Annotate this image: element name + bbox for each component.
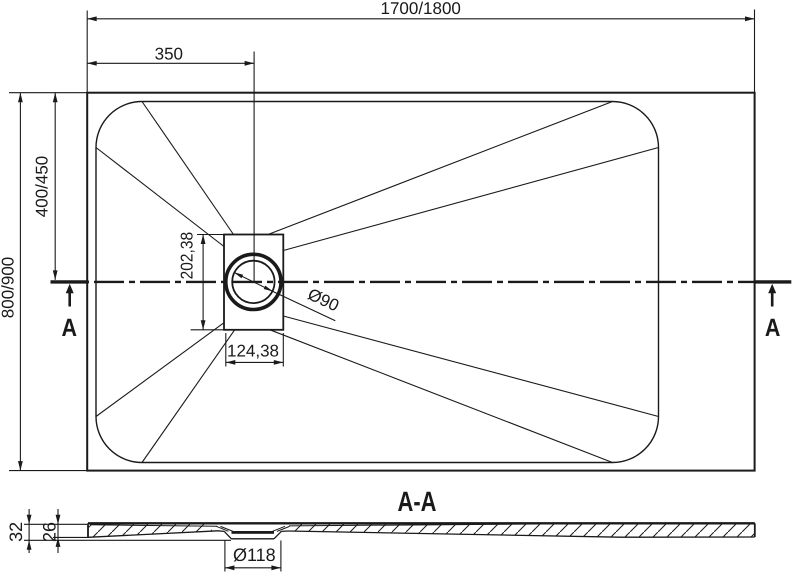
- svg-text:A: A: [61, 314, 77, 342]
- svg-text:800/900: 800/900: [0, 257, 18, 318]
- svg-text:400/450: 400/450: [33, 156, 52, 217]
- svg-text:32: 32: [6, 522, 26, 542]
- svg-text:Ø118: Ø118: [233, 545, 276, 565]
- svg-text:26: 26: [40, 522, 60, 542]
- svg-text:1700/1800: 1700/1800: [381, 0, 461, 18]
- svg-text:202,38: 202,38: [178, 232, 197, 280]
- svg-text:350: 350: [155, 45, 183, 64]
- svg-text:A: A: [765, 314, 781, 342]
- svg-text:Ø90: Ø90: [305, 285, 342, 316]
- svg-text:124,38: 124,38: [227, 342, 279, 361]
- svg-text:A-A: A-A: [398, 486, 437, 517]
